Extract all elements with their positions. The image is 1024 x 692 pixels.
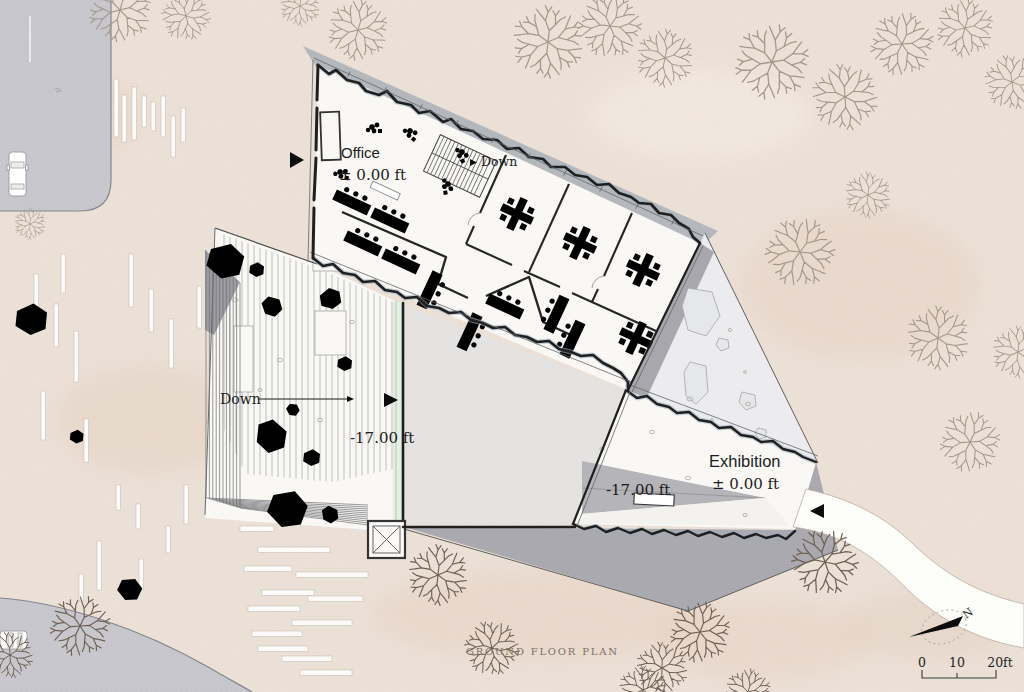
site-plan-svg: Office ± 0.00 ft Down Down -17.00 ft Exh… bbox=[0, 0, 1024, 692]
plaza-down-label: Down bbox=[220, 391, 261, 407]
architectural-site-plan: Office ± 0.00 ft Down Down -17.00 ft Exh… bbox=[0, 0, 1024, 692]
skylight-box bbox=[368, 521, 405, 558]
scale-tick-20: 20ft bbox=[987, 655, 1013, 670]
scale-tick-0: 0 bbox=[918, 655, 926, 670]
exhibition-ramp-level-label: -17.00 ft bbox=[606, 481, 670, 499]
office-level-label: ± 0.00 ft bbox=[339, 166, 406, 184]
office-down-label: Down bbox=[481, 154, 517, 169]
exhibition-label: Exhibition bbox=[709, 452, 781, 470]
road-upper bbox=[0, 0, 111, 211]
exhibition-level-label: ± 0.00 ft bbox=[712, 475, 779, 493]
car-icon bbox=[7, 152, 28, 196]
office-label: Office bbox=[341, 144, 380, 161]
plan-title: GROUND FLOOR PLAN bbox=[466, 646, 619, 657]
plaza-level-label: -17.00 ft bbox=[350, 429, 414, 447]
scale-tick-10: 10 bbox=[949, 655, 965, 670]
